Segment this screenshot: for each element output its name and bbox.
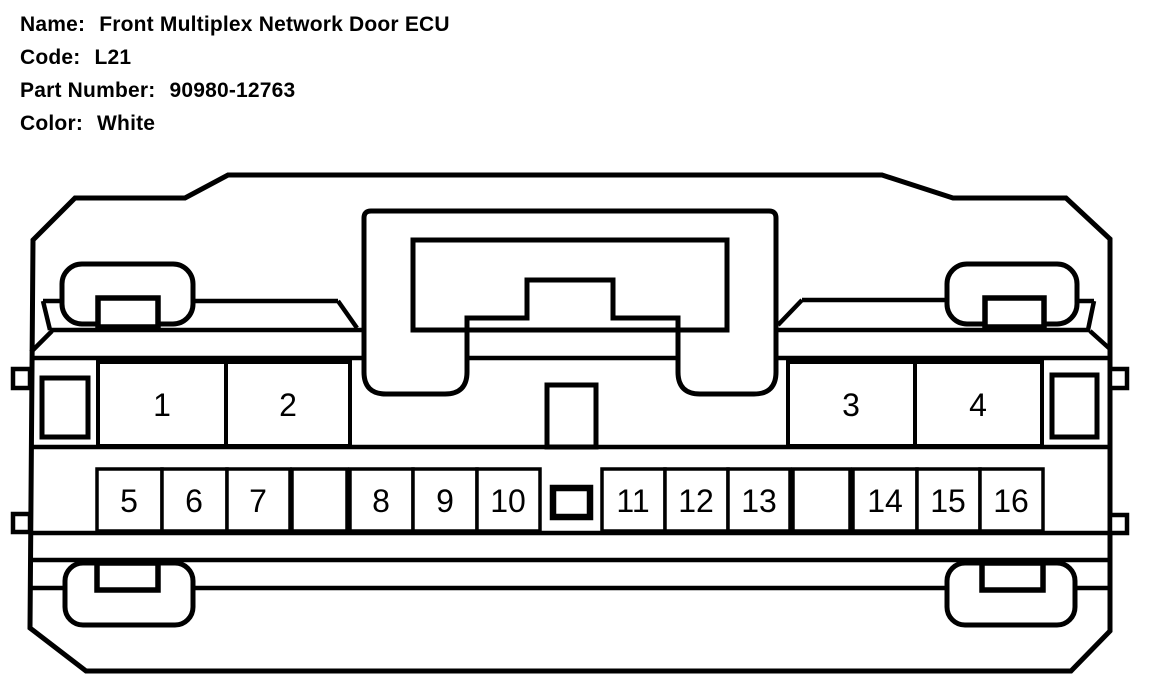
pin-5-label: 5 xyxy=(120,483,138,519)
side-cell-left xyxy=(42,378,88,437)
latch-notch-top-right xyxy=(985,298,1044,327)
edge-tab-right-lower xyxy=(1110,515,1127,533)
pin-4-label: 4 xyxy=(969,387,987,423)
edge-tab-left-upper xyxy=(13,369,30,388)
pin-11-label: 11 xyxy=(616,483,649,519)
pin-12-label: 12 xyxy=(678,483,714,519)
latch-notch-bottom-left xyxy=(97,563,158,590)
pin-9-label: 9 xyxy=(436,483,454,519)
pin-7-label: 7 xyxy=(249,483,267,519)
connector-spec-page: Name: Front Multiplex Network Door ECU C… xyxy=(0,0,1152,694)
side-cell-right xyxy=(1052,375,1097,437)
pin-6-label: 6 xyxy=(185,483,203,519)
latch-notch-top-left xyxy=(98,298,158,327)
center-hole xyxy=(553,488,590,517)
edge-tab-right-upper xyxy=(1110,369,1127,388)
pin-10-label: 10 xyxy=(490,483,526,519)
pin-1-label: 1 xyxy=(153,387,171,423)
edge-tab-left-lower xyxy=(13,514,30,532)
pin-14-label: 14 xyxy=(867,483,903,519)
latch-notch-bottom-right xyxy=(982,563,1043,590)
center-post xyxy=(547,385,596,447)
pin-15-label: 15 xyxy=(930,483,966,519)
pin-8-label: 8 xyxy=(372,483,390,519)
pin-2-label: 2 xyxy=(279,387,297,423)
blank-cell-1 xyxy=(292,469,347,531)
connector-diagram: 1 2 3 4 5 6 7 8 9 10 11 12 13 14 15 16 xyxy=(0,0,1152,694)
pin-13-label: 13 xyxy=(741,483,777,519)
pin-16-label: 16 xyxy=(993,483,1029,519)
blank-cell-2 xyxy=(793,469,850,531)
pin-3-label: 3 xyxy=(842,387,860,423)
